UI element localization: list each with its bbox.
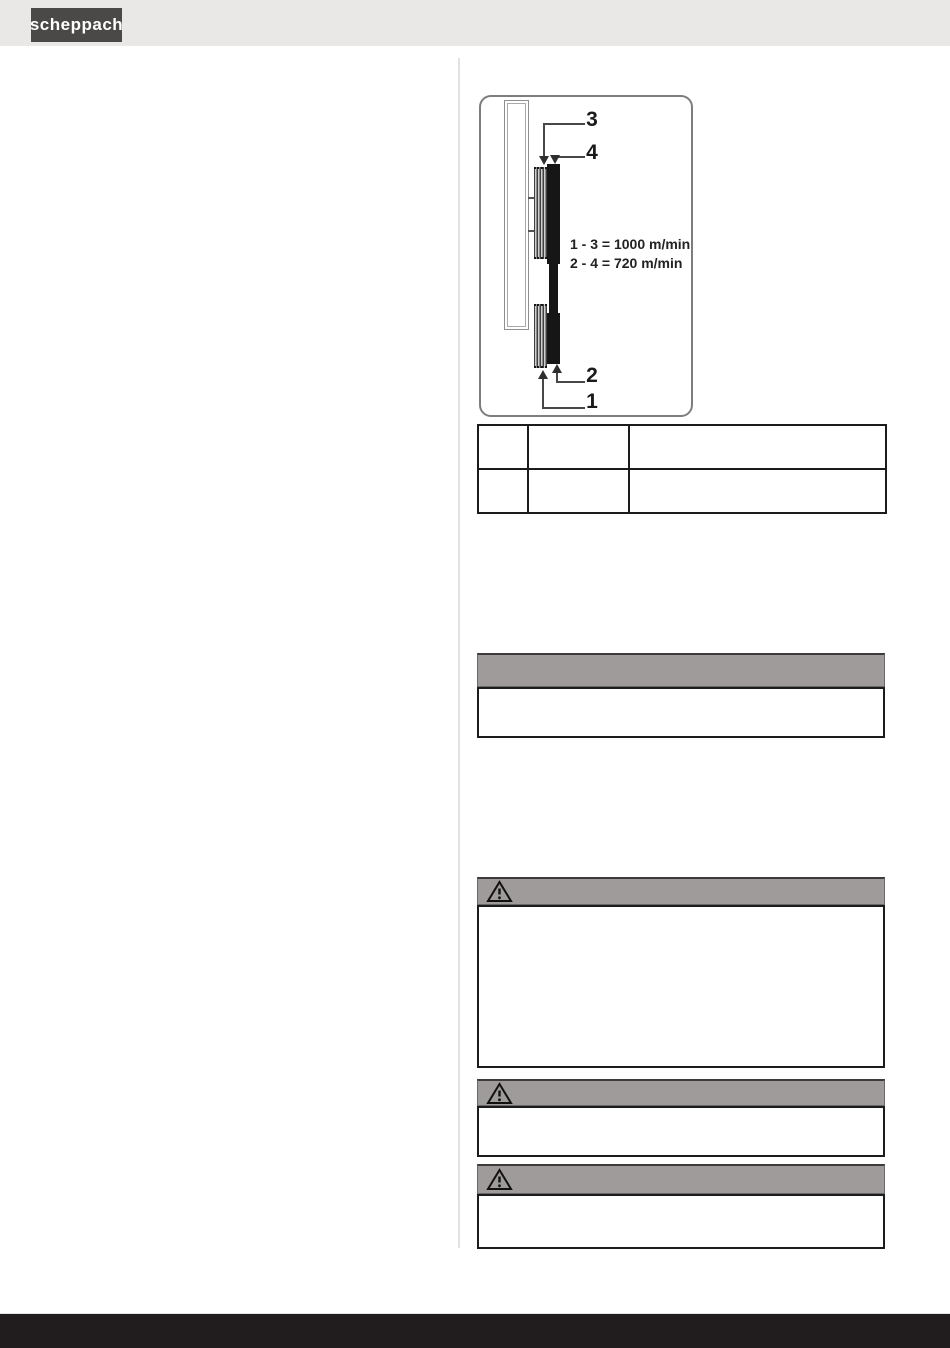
lower-pulley-figure bbox=[534, 304, 547, 368]
warning-box-header bbox=[477, 1079, 885, 1106]
note-box-body bbox=[477, 687, 885, 738]
warning-box-body bbox=[477, 905, 885, 1068]
page-header-bar: scheppach bbox=[0, 0, 950, 46]
callout-line-3 bbox=[543, 123, 585, 125]
upper-pulley-figure bbox=[534, 167, 547, 259]
machine-body-figure bbox=[504, 100, 529, 330]
warning-box-header bbox=[477, 877, 885, 905]
warning-triangle-icon bbox=[486, 1082, 513, 1105]
table-cell bbox=[478, 469, 528, 513]
arrow-up-icon bbox=[552, 364, 562, 373]
table-cell bbox=[629, 425, 886, 469]
warning-box-body bbox=[477, 1194, 885, 1249]
belt-middle-segment bbox=[549, 264, 558, 313]
callout-label-4: 4 bbox=[581, 142, 603, 163]
table-cell bbox=[528, 425, 629, 469]
column-divider bbox=[458, 58, 460, 1248]
table-cell bbox=[478, 425, 528, 469]
arrow-down-icon bbox=[539, 156, 549, 165]
belt-upper-segment bbox=[547, 164, 560, 264]
machine-body-inner-line bbox=[507, 103, 526, 327]
speed-line-2: 2 - 4 = 720 m/min bbox=[570, 254, 690, 273]
belt-speed-legend: 1 - 3 = 1000 m/min 2 - 4 = 720 m/min bbox=[570, 235, 690, 273]
callout-line-3 bbox=[543, 123, 545, 157]
warning-box-header bbox=[477, 1164, 885, 1194]
table-row bbox=[478, 469, 886, 513]
callout-label-2: 2 bbox=[581, 365, 603, 386]
warning-triangle-icon bbox=[486, 880, 513, 903]
brand-logo-text: scheppach bbox=[30, 15, 123, 35]
warning-triangle-icon bbox=[486, 1168, 513, 1191]
parts-table bbox=[477, 424, 887, 514]
callout-line-1 bbox=[542, 407, 585, 409]
manual-page: scheppach 3 4 1 - 3 = 1000 m/min 2 - 4 =… bbox=[0, 0, 950, 1348]
callout-label-1: 1 bbox=[581, 391, 603, 412]
callout-label-3: 3 bbox=[581, 109, 603, 130]
speed-line-1: 1 - 3 = 1000 m/min bbox=[570, 235, 690, 254]
table-row bbox=[478, 425, 886, 469]
table-cell bbox=[629, 469, 886, 513]
page-footer-bar bbox=[0, 1313, 950, 1348]
belt-speed-diagram: 3 4 1 - 3 = 1000 m/min 2 - 4 = 720 m/min… bbox=[479, 95, 693, 417]
warning-box-body bbox=[477, 1106, 885, 1157]
belt-lower-segment bbox=[547, 313, 560, 364]
arrow-down-icon bbox=[550, 155, 560, 164]
table-cell bbox=[528, 469, 629, 513]
brand-logo: scheppach bbox=[31, 8, 122, 42]
note-box-header bbox=[477, 653, 885, 687]
callout-line-1 bbox=[542, 377, 544, 409]
arrow-up-icon bbox=[538, 370, 548, 379]
